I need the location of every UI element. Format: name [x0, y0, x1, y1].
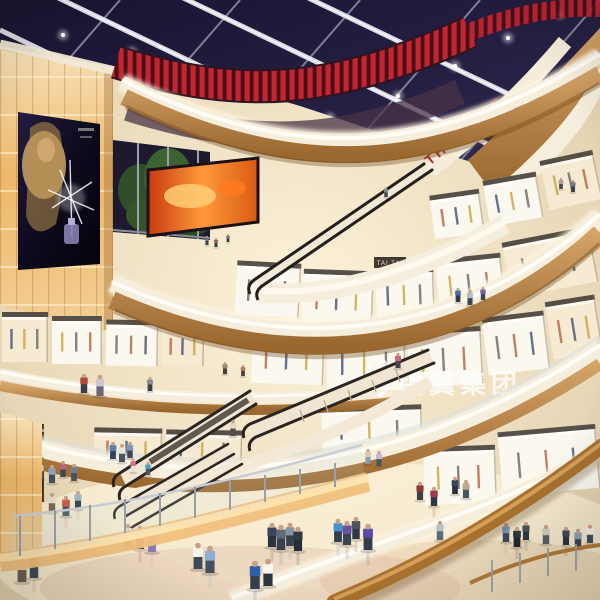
mall-atrium-rendering: THEATRES TAI TAI	[0, 0, 600, 600]
vignette	[0, 0, 600, 600]
